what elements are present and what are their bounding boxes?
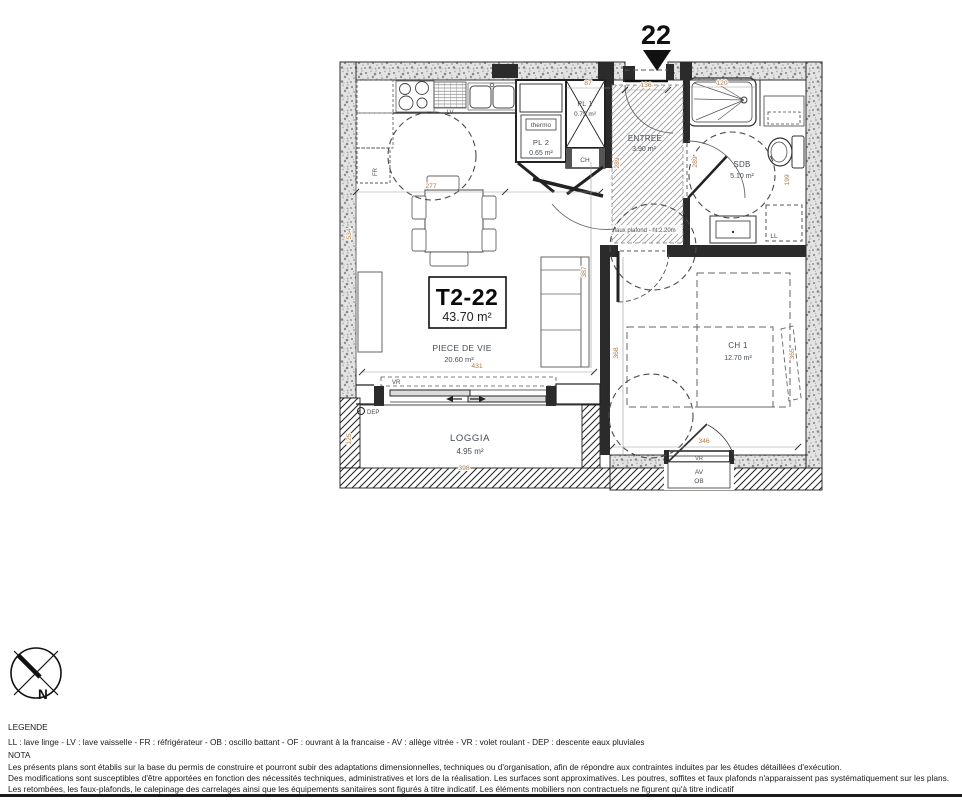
living-furniture <box>358 176 589 367</box>
washing-machine-label: LL <box>770 233 778 240</box>
compass-icon: N <box>11 648 61 702</box>
nota-line: Des modifications sont susceptibles d'êt… <box>8 773 949 784</box>
shutter-label-bedroom: VR <box>695 456 703 462</box>
rain-pipe: DEP <box>358 408 380 417</box>
nota-title: NOTA <box>8 750 30 761</box>
unit-total-area: 43.70 m² <box>442 310 491 324</box>
entree-name: ENTREE <box>628 134 662 143</box>
bathroom-cabinet <box>764 96 804 126</box>
svg-text:398: 398 <box>458 465 470 472</box>
bedroom-window: VR AV OB <box>664 424 734 490</box>
svg-text:534: 534 <box>346 228 353 240</box>
living-name: PIECE DE VIE <box>432 343 491 353</box>
floor-plan-drawing: faux plafond - ht:2.20m thermo PL 2 0.65… <box>0 0 962 720</box>
sliding-arrows <box>446 396 486 402</box>
pl2-door <box>518 163 554 192</box>
unit-title-box: T2-22 43.70 m² <box>429 277 506 328</box>
svg-text:387: 387 <box>581 266 588 278</box>
bedroom-furniture <box>627 273 801 407</box>
legend-title: LEGENDE <box>8 722 48 733</box>
toilet-icon <box>768 136 804 168</box>
false-ceiling-label: faux plafond - ht:2.20m <box>614 228 675 234</box>
hob-icon <box>396 81 434 112</box>
svg-text:289: 289 <box>614 157 621 169</box>
svg-text:125: 125 <box>346 433 353 445</box>
entree-area: 3.90 m² <box>632 146 656 153</box>
shutter-label-loggia: VR <box>392 380 401 386</box>
unit-number: 22 <box>641 20 671 50</box>
closet-pl1 <box>566 80 605 168</box>
svg-text:289: 289 <box>692 156 699 168</box>
water-heater-label: CH <box>580 157 590 164</box>
unit-marker: 22 <box>641 20 671 71</box>
tilt-window-label: OB <box>694 478 703 485</box>
closet-pl2-name: PL 2 <box>533 138 549 147</box>
sdb-name: SDB <box>733 160 750 169</box>
svg-text:368: 368 <box>613 347 620 359</box>
north-label: N <box>38 687 48 702</box>
loggia-name: LOGGIA <box>450 433 490 444</box>
closet-pl1-area: 0.75 m² <box>574 111 597 118</box>
loggia-walls <box>340 398 822 490</box>
sdb-area: 5.10 m² <box>730 173 754 180</box>
bedroom-name: CH 1 <box>728 341 748 350</box>
nota-line: Les présents plans sont établis sur la b… <box>8 762 842 773</box>
closet-pl1-name: PL 1 <box>577 101 592 108</box>
bedroom-area: 12.70 m² <box>724 355 752 362</box>
sink-icon <box>468 83 516 110</box>
svg-text:277: 277 <box>425 183 437 190</box>
washbasin-icon <box>710 216 756 243</box>
thermo-label: thermo <box>531 122 552 129</box>
svg-text:431: 431 <box>471 363 483 370</box>
fridge-label: FR <box>373 167 379 176</box>
svg-text:346: 346 <box>698 438 710 445</box>
closet-pl2-area: 0.65 m² <box>529 150 553 157</box>
living-area: 20.60 m² <box>444 355 474 364</box>
dining-table <box>425 190 483 252</box>
loggia-area: 4.95 m² <box>456 447 483 456</box>
sheet-bottom-rule <box>0 794 962 797</box>
dishwasher-icon <box>434 82 466 108</box>
svg-text:365: 365 <box>789 348 796 360</box>
legend-abbreviations: LL : lave linge - LV : lave vaisselle - … <box>8 737 645 748</box>
svg-text:199: 199 <box>784 174 791 186</box>
rain-pipe-label: DEP <box>367 410 379 416</box>
svg-text:87: 87 <box>584 80 592 87</box>
unit-code: T2-22 <box>436 284 499 310</box>
fridge-box <box>357 148 390 183</box>
sideboard <box>358 272 382 352</box>
svg-text:136: 136 <box>640 82 652 89</box>
svg-text:120: 120 <box>716 80 728 87</box>
floor-plan-sheet: faux plafond - ht:2.20m thermo PL 2 0.65… <box>0 0 962 800</box>
glazed-sill-label: AV <box>695 469 704 476</box>
loggia-window: VR <box>356 377 600 406</box>
